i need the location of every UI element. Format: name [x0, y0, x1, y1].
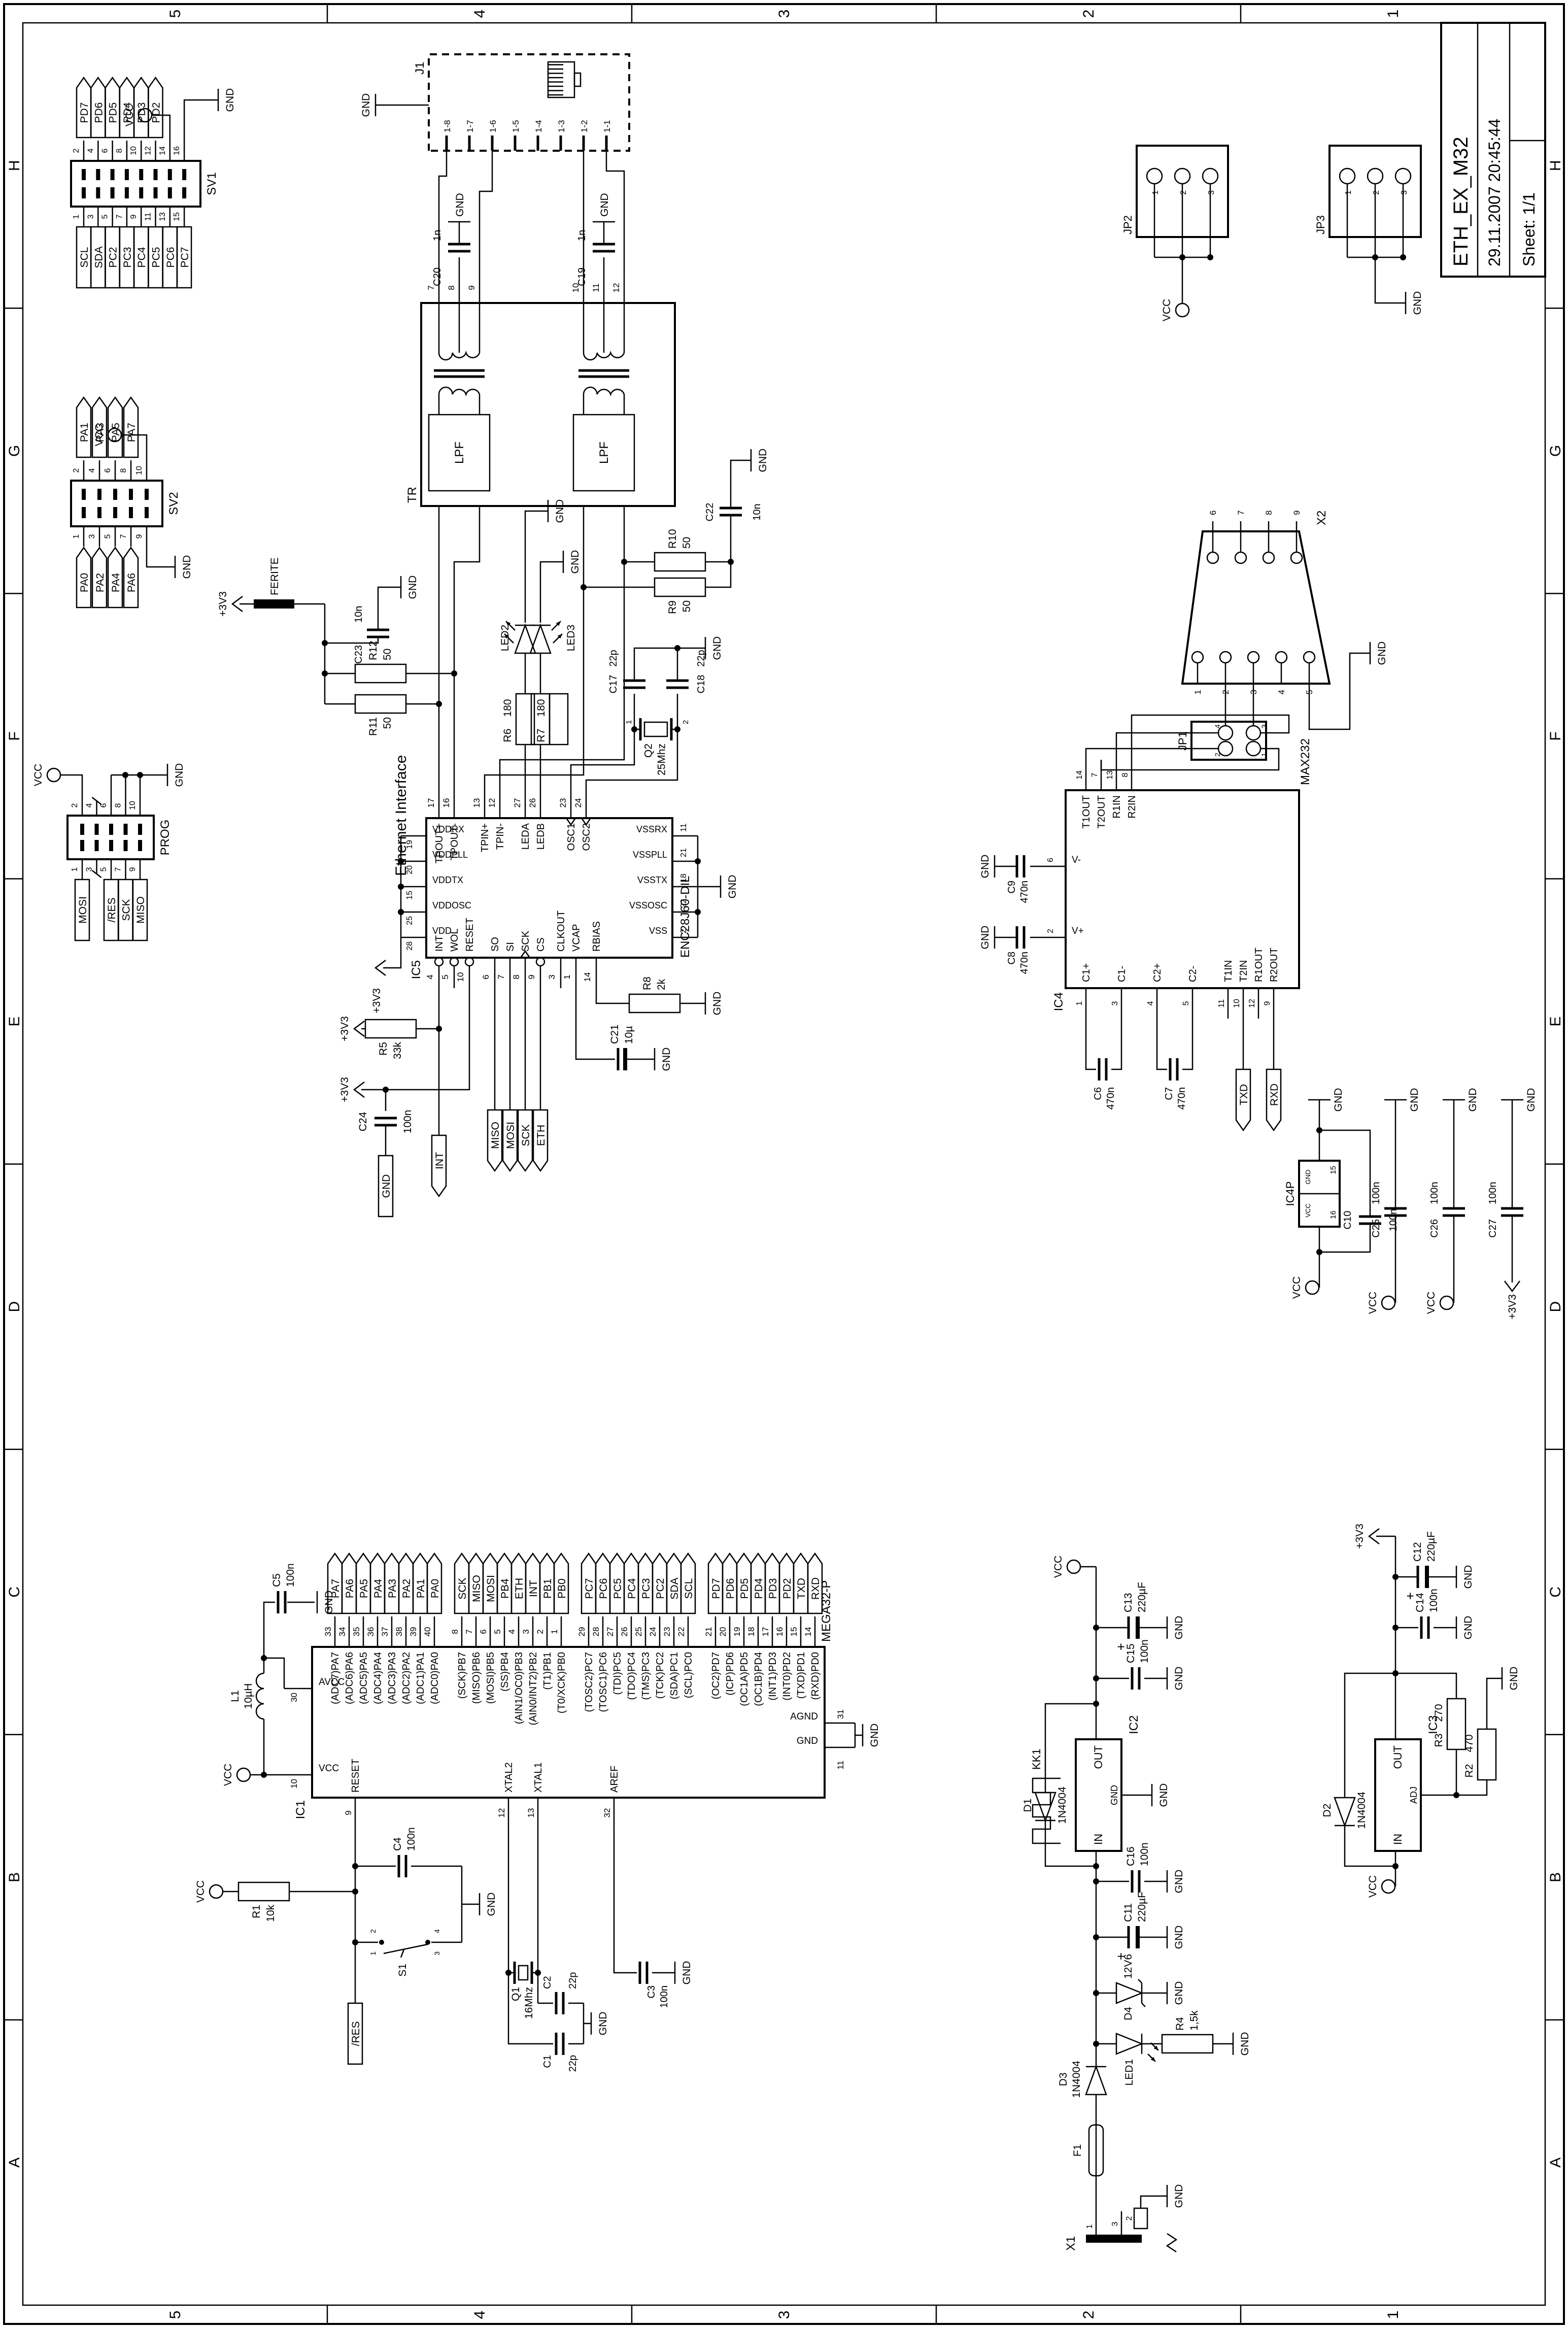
net-flag-label: PD3 [767, 1578, 779, 1599]
frame-row-right: 5 [167, 10, 184, 18]
pin-number: 6 [479, 1629, 488, 1634]
pin-name: (T0/XCK)PB0 [556, 1652, 567, 1713]
pin-number: 14 [158, 146, 167, 155]
pin-number: 1 [72, 214, 81, 219]
pin-name: (TDI)PC5 [612, 1652, 623, 1695]
pin-number: 10 [456, 972, 465, 982]
pin-name: VSS [649, 926, 667, 936]
pin-number: 3 [547, 974, 557, 979]
net-flag-label: SCL [683, 1578, 695, 1599]
net-flag-label: PD2 [781, 1578, 793, 1599]
sv1-body [71, 161, 200, 207]
pin-number: 2 [1046, 929, 1055, 933]
junction-dot [398, 909, 404, 915]
vcc-symbol [1440, 1296, 1453, 1309]
ic5-ref: IC5 [410, 960, 423, 979]
wire [1138, 1979, 1142, 1983]
part-value: 10k [265, 1905, 277, 1922]
resistor [1447, 1699, 1465, 1749]
pin-number: 2 [681, 720, 690, 724]
junction-dot [695, 909, 701, 915]
pin-name: INT [434, 935, 445, 952]
ic4-ref: IC4 [1052, 992, 1066, 1011]
pin-name: OSC1 [566, 823, 577, 851]
vcc-label: VCC [1161, 299, 1173, 321]
pin-number: 4 [425, 974, 435, 979]
part-ref: C21 [609, 1024, 621, 1044]
net-flag-label: PA0 [79, 573, 90, 592]
frame-col-top: H [6, 160, 23, 171]
part-ref: C10 [1342, 1211, 1353, 1230]
polarity-plus: + [1403, 1592, 1418, 1600]
pin-number: 2 [1372, 190, 1381, 195]
x1-ref: X1 [1064, 2236, 1078, 2251]
pin-name: XTAL1 [533, 1762, 544, 1793]
part-ref: C16 [1125, 1846, 1137, 1866]
resistor [355, 695, 406, 713]
part-value: 22p [608, 650, 619, 666]
pin-name: C2- [1187, 966, 1199, 982]
pin-number: 35 [352, 1627, 361, 1637]
pin-number: 7 [1090, 772, 1099, 777]
pin-name: (SDA)PC1 [669, 1652, 680, 1699]
net-flag-label: SDA [669, 1577, 680, 1599]
net-flag-label: TXD [1238, 1084, 1250, 1105]
part-ref: C3 [646, 1985, 657, 1999]
wire [1141, 2196, 1167, 2208]
x2-pin [1192, 652, 1203, 663]
pin-number: 11 [836, 1761, 845, 1770]
part-ref: D4 [1122, 2007, 1134, 2020]
pin-number: 28 [405, 941, 414, 951]
frame-col-top: D [6, 1301, 23, 1312]
pin-number: 6 [101, 148, 110, 153]
wire [614, 1828, 637, 1973]
inv-circle [465, 958, 473, 966]
pin-name: (TOSC1)PC6 [598, 1652, 609, 1712]
part-value: 470n [1019, 881, 1030, 903]
part-ref: KK1 [1030, 1748, 1043, 1770]
part-value: 22p [567, 2055, 578, 2072]
pin-number: 3 [1111, 2221, 1119, 2226]
net-flag-label: PB4 [499, 1578, 511, 1599]
part-value: 100n [1487, 1182, 1498, 1205]
gnd-label: GND [681, 1961, 693, 1985]
net-flag-label: SCL [79, 247, 90, 268]
gnd-label: GND [1467, 1088, 1479, 1112]
pin-number: 37 [380, 1627, 390, 1637]
net-flag-label: SCK [520, 1124, 532, 1146]
pin-name: T1IN [1223, 960, 1234, 982]
pin-name: ADJ [1409, 1786, 1419, 1804]
net-flag-label: PC4 [136, 247, 148, 267]
pin-number: 21 [704, 1627, 713, 1637]
net-flag-label: PA1 [415, 1579, 427, 1598]
vcc-symbol [210, 1885, 223, 1898]
wire [1045, 1704, 1096, 1793]
pin-number: 4 [507, 1629, 517, 1634]
x2-pin [1207, 552, 1218, 563]
pin-number: 3 [1207, 190, 1216, 195]
pin-number: 13 [1106, 770, 1114, 780]
vcc-label: VCC [1367, 1292, 1379, 1314]
pin-number: 1-3 [557, 120, 566, 132]
lpf-label: LPF [597, 442, 611, 464]
part-value: 10µH [243, 1683, 254, 1709]
lpf-label: LPF [453, 442, 466, 464]
pin-number: 3 [88, 534, 96, 538]
title-text: ETH_EX_M32 [1450, 137, 1472, 266]
pin-name: VCC [319, 1763, 339, 1774]
pin-number: 34 [337, 1627, 347, 1637]
pin-number: 9 [135, 534, 144, 538]
wire [576, 988, 615, 1059]
part-ref: F1 [1072, 2144, 1083, 2157]
pin-number: 2 [72, 148, 81, 153]
diode [1335, 1798, 1355, 1826]
prog-body [67, 816, 154, 859]
part-ref: LED1 [1123, 2059, 1135, 2086]
wire [1345, 1826, 1395, 1866]
jp1-pin [1246, 741, 1260, 756]
part-value: 470 [1463, 1734, 1475, 1752]
net-flag-label: INT [434, 1152, 446, 1169]
part-ref: C23 [353, 645, 364, 664]
pin-number: 1 [1260, 753, 1268, 757]
net-flag-label: PA2 [94, 573, 106, 592]
pin-number: 7 [115, 214, 124, 219]
net-flag-label: ETH [535, 1125, 547, 1146]
part-value: 1n [576, 230, 588, 241]
gnd-label: GND [1173, 1616, 1185, 1640]
pin-number: 1-7 [465, 120, 475, 132]
wire [61, 775, 82, 816]
gnd-label: GND [1412, 291, 1423, 315]
wire [383, 937, 401, 968]
jp1-body [1191, 722, 1266, 760]
pin-name: OSC2 [581, 823, 592, 851]
pin-number: 19 [405, 840, 414, 849]
wire [731, 460, 751, 508]
net-flag-label: SCK [457, 1577, 468, 1599]
pin-number: 27 [513, 798, 522, 808]
gnd-label: GND [757, 449, 769, 473]
wire [1487, 1678, 1502, 1729]
pin-number: 5 [493, 1629, 502, 1634]
net-flag-label: RXD [810, 1577, 822, 1600]
part-ref: R11 [367, 717, 379, 736]
gnd-label: GND [360, 93, 372, 117]
net-flag-label: PA5 [358, 1579, 370, 1598]
box [519, 1966, 528, 1980]
pin-number: 25 [405, 916, 414, 925]
pin-number: 9 [467, 285, 476, 290]
net-flag-label: MOSI [505, 1122, 517, 1149]
pin-number: 9 [1292, 511, 1302, 515]
part-value: 100n [285, 1563, 296, 1587]
pin-number: 5 [1182, 1001, 1190, 1005]
pin-number: 2 [1213, 753, 1221, 757]
vcc-symbol [1306, 1281, 1319, 1294]
pin-number: 1 [1193, 690, 1203, 694]
ferrite-bead [254, 599, 294, 609]
sv2-body [71, 481, 162, 526]
pin-number: 6 [104, 468, 112, 473]
pin-number: 10 [135, 466, 144, 475]
pin-number: 38 [394, 1627, 404, 1637]
net-flag-label: PD2 [151, 103, 162, 123]
pin-name: T2IN [1238, 960, 1249, 982]
pin-name: SI [505, 942, 516, 952]
gnd-label: GND [1462, 1616, 1474, 1640]
net-flag-label: /RES [350, 2021, 362, 2046]
frame-col-top: A [6, 2157, 23, 2168]
frame-row-right: 2 [1080, 10, 1097, 18]
net-flag-label: MOSI [77, 896, 89, 924]
vcc-symbol [237, 1768, 250, 1781]
part-ref: C13 [1122, 1593, 1134, 1612]
title-sheet: Sheet: 1/1 [1520, 192, 1538, 266]
part-value: 10n [353, 606, 364, 623]
sv1-ref: SV1 [205, 172, 219, 195]
part-ref: C24 [357, 1111, 369, 1131]
gnd-label: GND [1462, 1565, 1474, 1589]
part-ref: C6 [1093, 1087, 1104, 1100]
wire [480, 151, 492, 273]
gnd-label: GND [224, 88, 236, 112]
gnd-label: GND [1239, 2032, 1251, 2056]
net-flag-label: PC5 [151, 247, 162, 268]
j1-body [429, 54, 629, 151]
net-flag-label: PC4 [626, 1578, 638, 1599]
part-value: 100n [405, 1827, 417, 1851]
part-value: 470n [1176, 1087, 1187, 1110]
pin-number: 2 [72, 468, 81, 473]
pin-number: 8 [447, 285, 456, 290]
frame-row-right: 3 [776, 10, 793, 18]
pin-name: VDD [432, 926, 452, 936]
pin-number: 12 [144, 146, 153, 155]
gnd-label: GND [1508, 1667, 1520, 1691]
pin-name: (TOSC2)PC7 [584, 1652, 595, 1712]
ic2-ref: IC2 [1127, 1715, 1141, 1734]
pin-name: VCC [1304, 1203, 1312, 1217]
part-ref: L1 [229, 1690, 241, 1702]
part-ref: C2 [542, 1976, 553, 1989]
pin-number: 4 [88, 468, 96, 473]
pin-number: 6 [99, 803, 108, 807]
net-flag-label: PC6 [165, 247, 177, 268]
gnd-label: GND [597, 2012, 609, 2036]
part-value: 50 [382, 649, 393, 660]
frame-row-left: 1 [1385, 2311, 1402, 2319]
gnd-label: GND [727, 875, 738, 899]
vcc-label: VCC [222, 1764, 234, 1786]
pin-number: 7 [114, 867, 123, 871]
resistor [1162, 2035, 1213, 2053]
pin-number: 8 [119, 468, 128, 473]
vcc-symbol [1382, 1296, 1395, 1309]
pin-number: 15 [173, 212, 181, 221]
pin-number: 1-1 [602, 120, 612, 132]
wire [401, 1949, 404, 1958]
net-flag-label: PC6 [598, 1578, 609, 1599]
p3v3-label: +3V3 [371, 988, 383, 1014]
pin-name: (AIN0/INT2)PB2 [528, 1652, 539, 1725]
part-value: 100n [402, 1110, 414, 1134]
schematic-canvas: AABBCCDDEEFFGGHH5544332211ETH_EX_M3229.1… [0, 0, 1568, 2328]
pin-number: 29 [577, 1627, 587, 1637]
part-ref: D2 [1321, 1804, 1333, 1817]
box [574, 73, 581, 86]
pin-name: VDDTX [432, 875, 463, 885]
wire [1319, 1130, 1370, 1217]
wire [454, 506, 480, 788]
wire [1157, 1019, 1167, 1069]
p3v3-label: +3V3 [339, 1016, 351, 1041]
pin-name: OUT [1092, 1745, 1105, 1769]
gnd-label: GND [181, 555, 193, 579]
part-ref: R10 [667, 529, 678, 549]
net-flag-label: PC7 [584, 1578, 595, 1599]
pin-name: (TMS)PC3 [640, 1652, 652, 1700]
pin-number: 14 [803, 1627, 813, 1637]
frame-col-bottom: B [1547, 1872, 1564, 1882]
gnd-label: GND [569, 550, 581, 574]
pin-name: TPIN- [495, 823, 506, 850]
jp1-ref: JP1 [1176, 731, 1189, 751]
x1-center-pin [1086, 2235, 1142, 2243]
part-ref: LED3 [565, 625, 577, 652]
net-flag-label: PA3 [387, 1579, 398, 1598]
gnd-label: GND [599, 193, 610, 217]
wire [1345, 1673, 1395, 1798]
pin-number: 1 [71, 867, 79, 871]
vcc-label: VCC [195, 1880, 207, 1903]
junction-dot [322, 670, 328, 677]
inv-circle [450, 958, 458, 966]
pin-number: 21 [679, 848, 688, 857]
vcc-label: VCC [1291, 1276, 1303, 1299]
pin-name: (ICP)PD6 [725, 1652, 736, 1696]
pin-number: 3 [1111, 1001, 1119, 1005]
pin-number: 5 [101, 214, 110, 219]
vcc-symbol [47, 768, 60, 782]
pin-number: 1-5 [511, 120, 521, 132]
net-flag-label: MISO [490, 1122, 501, 1149]
net-flag-label: PA4 [110, 573, 122, 592]
part-ref: C25 [1371, 1219, 1382, 1238]
jp2-ref: JP2 [1121, 215, 1134, 234]
gnd-label: GND [1333, 1088, 1344, 1112]
diode [1086, 2067, 1106, 2095]
part-value: 16Mhz [523, 1987, 535, 2019]
pin-number: 2 [535, 1629, 545, 1634]
gnd-label: GND [711, 992, 723, 1016]
gnd-label: GND [979, 926, 991, 950]
net-flag-label: SCK [121, 899, 132, 921]
pin-name: (T1)PB1 [542, 1652, 553, 1690]
pin-number: 4 [86, 148, 95, 153]
pin-number: 16 [441, 798, 451, 808]
junction-dot [398, 858, 404, 864]
net-flag-label: PD3 [136, 103, 148, 123]
vcc-label: VCC [93, 424, 105, 446]
resistor [629, 994, 680, 1013]
junction-dot [122, 772, 128, 778]
wire [705, 515, 731, 587]
pin-name: (ADC2)PA2 [401, 1652, 412, 1704]
pin-number: 9 [129, 214, 138, 219]
vcc-symbol [1382, 1880, 1395, 1893]
pin-name: VSSRX [636, 824, 667, 834]
pin-number: 2 [71, 803, 79, 807]
frame-row-left: 2 [1080, 2311, 1097, 2319]
pin-number: 20 [718, 1627, 728, 1637]
part-value: 50 [681, 537, 693, 549]
part-value: 100n [1388, 1209, 1399, 1232]
vcc-label: VCC [1367, 1875, 1379, 1898]
gnd-label: GND [711, 636, 723, 660]
pin-name: (OC1A)PD5 [739, 1652, 750, 1706]
net-flag-label: PD4 [753, 1578, 765, 1599]
part-ref: C20 [432, 267, 443, 286]
tr-coil [439, 353, 480, 360]
pin-name: LEDA [520, 823, 531, 850]
gnd-label: GND [979, 855, 991, 879]
frame-col-top: C [6, 1587, 23, 1598]
pin-number: 12 [497, 1808, 506, 1818]
jp3-ref: JP3 [1314, 215, 1327, 234]
gnd-label: GND [1158, 1783, 1170, 1807]
net-flag-label: PD7 [710, 1578, 722, 1599]
vcc-label: VCC [124, 104, 135, 126]
part-value: 1N4004 [1356, 1792, 1368, 1829]
resistor [238, 1882, 289, 1901]
frame-col-bottom: G [1547, 445, 1564, 457]
switch-contact [379, 1940, 384, 1945]
part-ref: C26 [1429, 1219, 1440, 1238]
gnd-label: GND [1173, 1926, 1185, 1949]
frame-inner [23, 23, 1545, 2305]
frame-col-bottom: H [1547, 160, 1564, 171]
tr-coil [584, 353, 624, 360]
net-flag-label: SDA [93, 246, 105, 268]
resistor [655, 578, 705, 596]
pin-name: VSSPLL [633, 850, 667, 860]
net-flag-label: PA1 [79, 423, 90, 442]
net-flag-label: PA6 [344, 1579, 356, 1598]
jp2-pin [1203, 168, 1218, 184]
pin-name: R1OUT [1253, 948, 1265, 982]
part-value: 10n [752, 503, 763, 520]
part-value: 220µF [1136, 1892, 1148, 1922]
part-value: 22p [567, 1972, 578, 1989]
wire [1375, 257, 1406, 303]
net-flag-label: PA4 [372, 1579, 384, 1598]
pin-number: 3 [521, 1629, 531, 1634]
pin-number: 2 [679, 929, 688, 933]
frame-col-top: F [6, 731, 23, 740]
net-flag-label: PD7 [79, 103, 90, 123]
jp3-pin [1368, 168, 1383, 184]
pin-number: 16 [173, 146, 181, 155]
frame-col-top: B [6, 1872, 23, 1882]
pin-number: 40 [423, 1627, 432, 1637]
part-ref: C8 [1006, 952, 1017, 965]
vcc-label: VCC [32, 764, 44, 786]
part-ref: C18 [696, 675, 707, 694]
